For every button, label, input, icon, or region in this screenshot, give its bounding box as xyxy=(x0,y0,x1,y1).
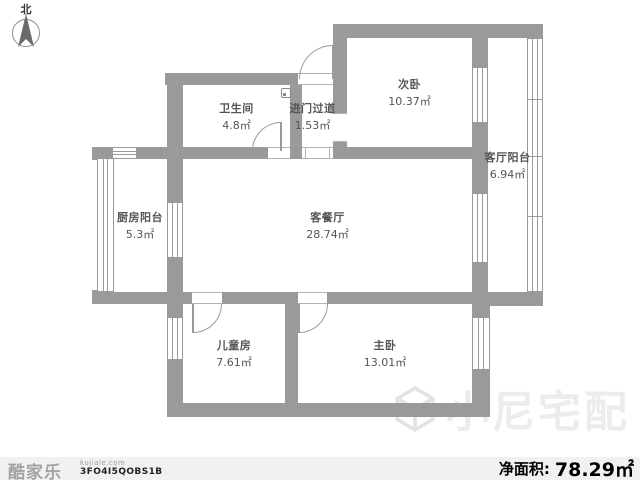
window xyxy=(472,67,488,123)
window xyxy=(472,317,490,370)
wall-segment xyxy=(167,258,183,317)
room-name: 主卧 xyxy=(374,337,397,353)
room-name: 儿童房 xyxy=(217,337,252,353)
wall-segment xyxy=(472,24,488,67)
passage-opening-corridor-living xyxy=(302,147,333,159)
wall-segment xyxy=(167,403,490,417)
door-opening-master-bedroom xyxy=(298,292,327,304)
room-area: 7.61㎡ xyxy=(216,354,252,370)
door-leaf xyxy=(332,45,334,79)
room-kids-room: 儿童房 7.61㎡ xyxy=(183,304,285,403)
room-name: 次卧 xyxy=(398,76,421,92)
room-area: 6.94㎡ xyxy=(490,166,526,182)
room-name: 厨房阳台 xyxy=(117,209,163,225)
room-bathroom: 卫生间 4.8㎡ xyxy=(183,85,290,147)
door-opening-kids-room xyxy=(192,292,222,304)
wall-segment xyxy=(165,73,298,85)
north-label: 北 xyxy=(21,2,32,16)
room-secondary-bedroom: 次卧 10.37㎡ xyxy=(347,38,472,147)
room-area: 1.53㎡ xyxy=(295,117,331,133)
footer-bar: 酷家乐 kujiale.com 3FO4I5QOBS1B 净面积: 78.29㎡ xyxy=(0,457,640,480)
room-entry-corridor: 进门过道 1.53㎡ xyxy=(292,85,333,147)
wall-segment xyxy=(285,292,298,417)
net-area: 净面积: 78.29㎡ xyxy=(499,457,634,480)
window xyxy=(167,317,183,360)
window xyxy=(472,193,488,263)
kujiale-site-label: kujiale.com xyxy=(80,459,125,467)
wall-segment xyxy=(333,142,347,159)
room-name: 进门过道 xyxy=(290,100,336,116)
north-compass-icon: 北 xyxy=(6,2,50,54)
room-name: 客厅阳台 xyxy=(485,149,531,165)
wall-segment xyxy=(333,147,472,159)
window xyxy=(527,38,543,292)
wall-segment xyxy=(333,24,543,38)
window xyxy=(97,158,114,292)
door-opening-secondary-bedroom xyxy=(333,113,347,142)
wall-segment xyxy=(95,292,192,304)
room-living-balcony: 客厅阳台 6.94㎡ xyxy=(488,38,527,292)
room-area: 28.74㎡ xyxy=(306,226,349,242)
kujiale-logo: 酷家乐 xyxy=(8,458,62,480)
room-area: 5.3㎡ xyxy=(126,226,155,242)
window xyxy=(167,202,183,258)
wall-segment xyxy=(167,73,183,202)
window-divider xyxy=(528,99,542,100)
wall-segment xyxy=(472,292,490,317)
plan-code: 3FO4I5QOBS1B xyxy=(80,467,163,477)
room-living-dining: 客餐厅 28.74㎡ xyxy=(183,159,472,292)
room-master-bedroom: 主卧 13.01㎡ xyxy=(298,304,472,403)
window-divider xyxy=(528,216,542,217)
net-area-label: 净面积: xyxy=(499,458,550,479)
room-name: 客餐厅 xyxy=(310,209,345,225)
room-name: 卫生间 xyxy=(219,100,254,116)
room-kitchen-balcony: 厨房阳台 5.3㎡ xyxy=(113,158,167,292)
wall-segment xyxy=(472,370,490,417)
room-area: 4.8㎡ xyxy=(222,117,251,133)
room-area: 13.01㎡ xyxy=(364,354,407,370)
room-area: 10.37㎡ xyxy=(388,93,431,109)
floor-plan-canvas: 北 小尼宅配 xyxy=(0,0,640,480)
door-swing-arc xyxy=(299,45,333,79)
wall-segment xyxy=(327,292,472,304)
net-area-value: 78.29㎡ xyxy=(555,455,634,480)
